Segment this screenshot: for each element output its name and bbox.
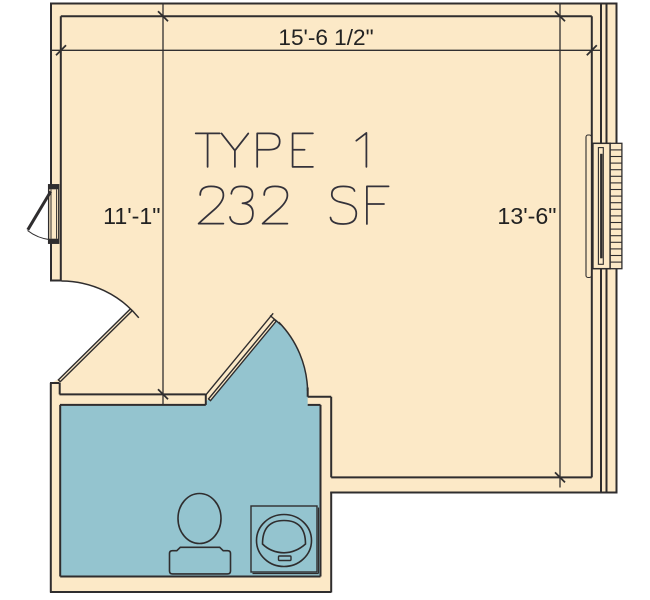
svg-text:15'-6 1/2": 15'-6 1/2"	[278, 25, 373, 50]
svg-text:13'-6": 13'-6"	[497, 203, 556, 229]
svg-text:11'-1": 11'-1"	[103, 203, 160, 229]
